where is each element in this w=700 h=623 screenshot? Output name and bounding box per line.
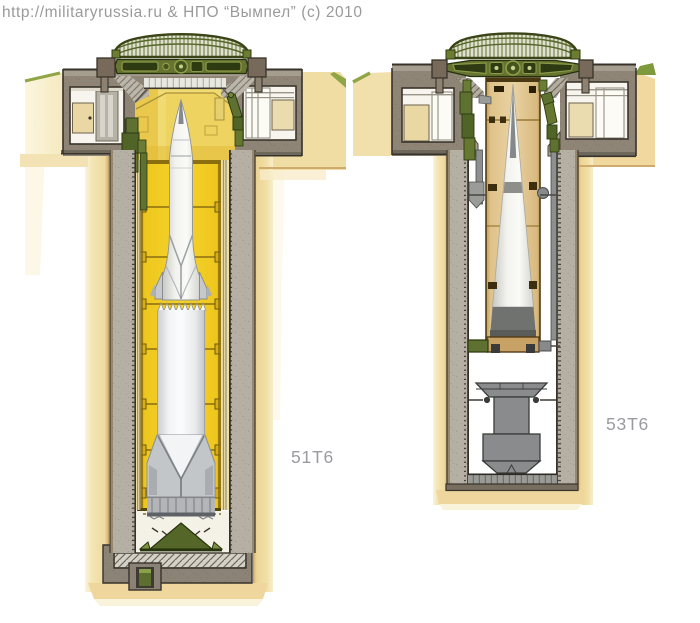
svg-text:http://militaryrussia.ru & НПО: http://militaryrussia.ru & НПО “Вымпел” …: [2, 4, 363, 21]
svg-text:53T6: 53T6: [606, 414, 649, 434]
svg-text:51T6: 51T6: [291, 447, 334, 467]
